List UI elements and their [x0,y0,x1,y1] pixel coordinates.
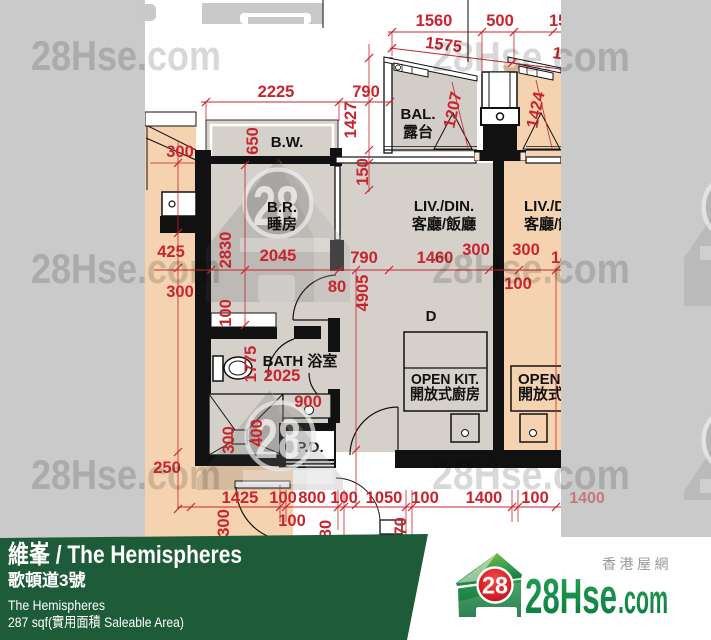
svg-text:D: D [426,308,437,325]
svg-text:B.R.: B.R. [267,199,297,216]
svg-text:790: 790 [350,249,378,267]
svg-text:The Hemispheres: The Hemispheres [8,597,105,613]
svg-text:1050: 1050 [366,489,403,507]
svg-text:100: 100 [330,489,358,507]
svg-text:28Hse.com: 28Hse.com [31,451,221,498]
svg-text:400: 400 [248,419,266,447]
svg-text:28Hse.com: 28Hse.com [31,245,221,292]
svg-text:2025: 2025 [264,367,301,385]
svg-text:2225: 2225 [258,83,295,101]
svg-text:28: 28 [482,573,508,600]
svg-text:800: 800 [298,489,326,507]
svg-text:300: 300 [215,509,233,537]
svg-text:650: 650 [244,127,262,155]
svg-text:900: 900 [294,393,322,411]
svg-text:28Hse.com: 28Hse.com [31,32,221,79]
svg-text:790: 790 [352,83,380,101]
svg-text:客廳/飯廳: 客廳/飯廳 [411,215,476,233]
svg-text:歌頓道3號: 歌頓道3號 [8,570,85,590]
svg-text:100: 100 [278,512,306,530]
svg-text:維峯 / The Hemispheres: 維峯 / The Hemispheres [8,540,242,569]
svg-text:300: 300 [166,143,194,161]
svg-text:100: 100 [269,489,297,507]
svg-text:香港屋網: 香港屋網 [602,556,672,572]
svg-text:1425: 1425 [222,489,259,507]
svg-text:B.W.: B.W. [271,134,304,151]
svg-text:BAL.: BAL. [401,106,436,123]
svg-text:LIV./DIN.: LIV./DIN. [414,198,474,215]
svg-text:287 sqf(實用面積 Saleable Area): 287 sqf(實用面積 Saleable Area) [8,614,184,630]
svg-text:睡房: 睡房 [267,215,297,233]
svg-text:500: 500 [486,12,514,30]
svg-text:28Hse.com: 28Hse.com [432,451,630,498]
svg-text:1560: 1560 [416,12,453,30]
svg-text:28Hse: 28Hse [525,570,617,624]
svg-text:28Hse.com: 28Hse.com [432,245,630,292]
svg-text:4905: 4905 [354,275,372,312]
svg-text:2045: 2045 [260,247,297,265]
svg-text:150: 150 [354,158,372,186]
svg-text:300: 300 [220,426,238,454]
svg-text:100: 100 [217,299,235,327]
svg-text:露台: 露台 [403,123,433,141]
svg-text:80: 80 [328,278,346,296]
svg-text:28Hse.com: 28Hse.com [432,33,630,80]
svg-text:1775: 1775 [242,346,260,383]
svg-text:1427: 1427 [342,102,360,139]
svg-text:.com: .com [618,578,668,622]
svg-text:開放式廚房: 開放式廚房 [410,385,480,403]
